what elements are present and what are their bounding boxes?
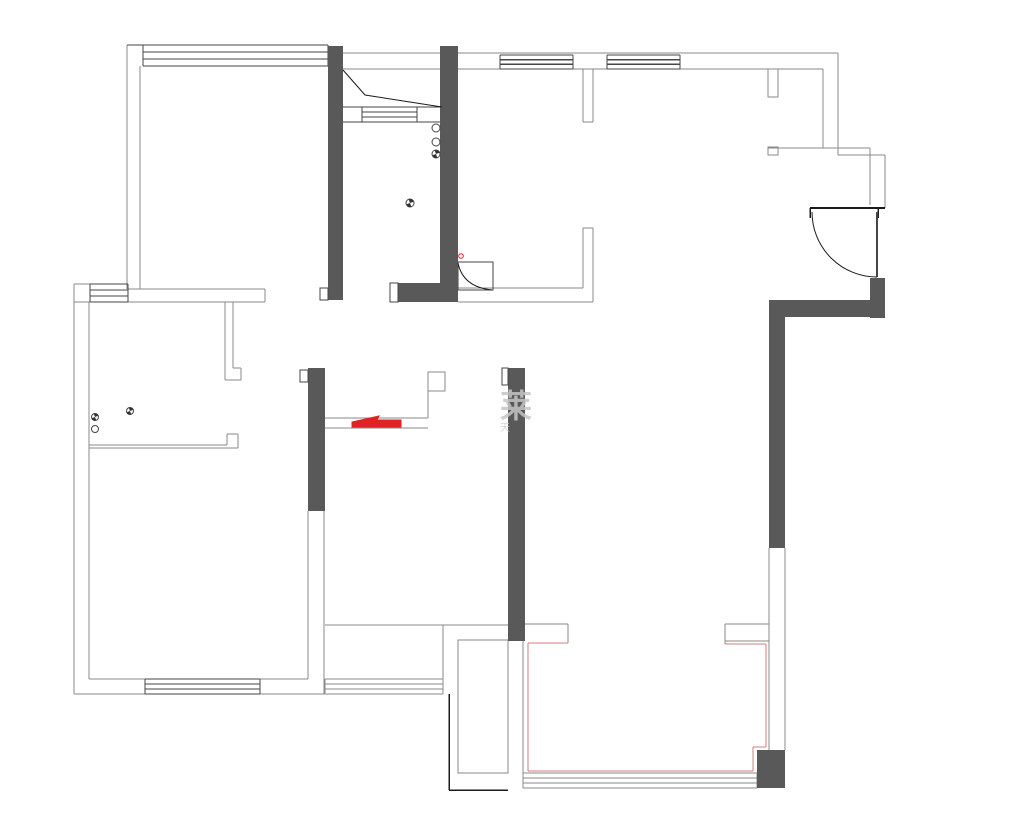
window-top-mid-2 — [607, 55, 680, 69]
wall-end-cap — [320, 288, 328, 300]
marker-circles-layer — [91, 124, 464, 433]
wall-corridor-bottom — [398, 283, 458, 302]
closet-diagonal — [343, 70, 442, 107]
red-circle-marker — [459, 254, 464, 259]
wall-end-cap — [390, 283, 398, 302]
cabinet-end — [428, 372, 445, 391]
bathroom-door-arc — [458, 263, 492, 290]
thin-wall-lines-layer — [74, 45, 885, 790]
window-balcony — [523, 773, 757, 788]
duct-shaft — [458, 640, 508, 773]
wall-corridor-right — [440, 46, 458, 302]
half-circle-marker — [431, 149, 441, 159]
wall-right-side — [769, 317, 785, 548]
window-bottom-left — [145, 679, 260, 694]
wall-end-cap — [502, 368, 508, 385]
open-circle-marker — [92, 426, 99, 433]
outline-rects-layer — [362, 69, 778, 773]
floor-plan-drawing — [0, 0, 1026, 821]
wall-stub-top — [768, 69, 778, 97]
half-circle-marker — [91, 413, 100, 422]
wall-entry-top — [769, 300, 885, 317]
wall-mid-divider — [308, 368, 325, 511]
open-circle-marker — [432, 138, 440, 146]
wall-balcony-block — [757, 750, 785, 788]
window-left-small — [90, 284, 128, 302]
half-circle-marker — [126, 407, 135, 416]
wall-end-cap — [300, 370, 308, 382]
wall-corridor-left — [328, 46, 343, 300]
window-top-left — [143, 45, 328, 66]
window-top-mid-1 — [500, 55, 573, 69]
open-circle-marker — [432, 124, 440, 132]
thick-walls-layer — [308, 46, 885, 788]
entry-door-arc — [812, 212, 877, 277]
half-circle-marker — [405, 198, 415, 208]
closet-shelf — [362, 107, 417, 122]
window-bottom-middle — [325, 679, 443, 694]
wall-living-divider — [508, 368, 525, 641]
windows-layer — [90, 45, 757, 788]
floor-plan-canvas: 莱 天 — [0, 0, 1026, 821]
symbol-paths-layer — [343, 70, 877, 427]
